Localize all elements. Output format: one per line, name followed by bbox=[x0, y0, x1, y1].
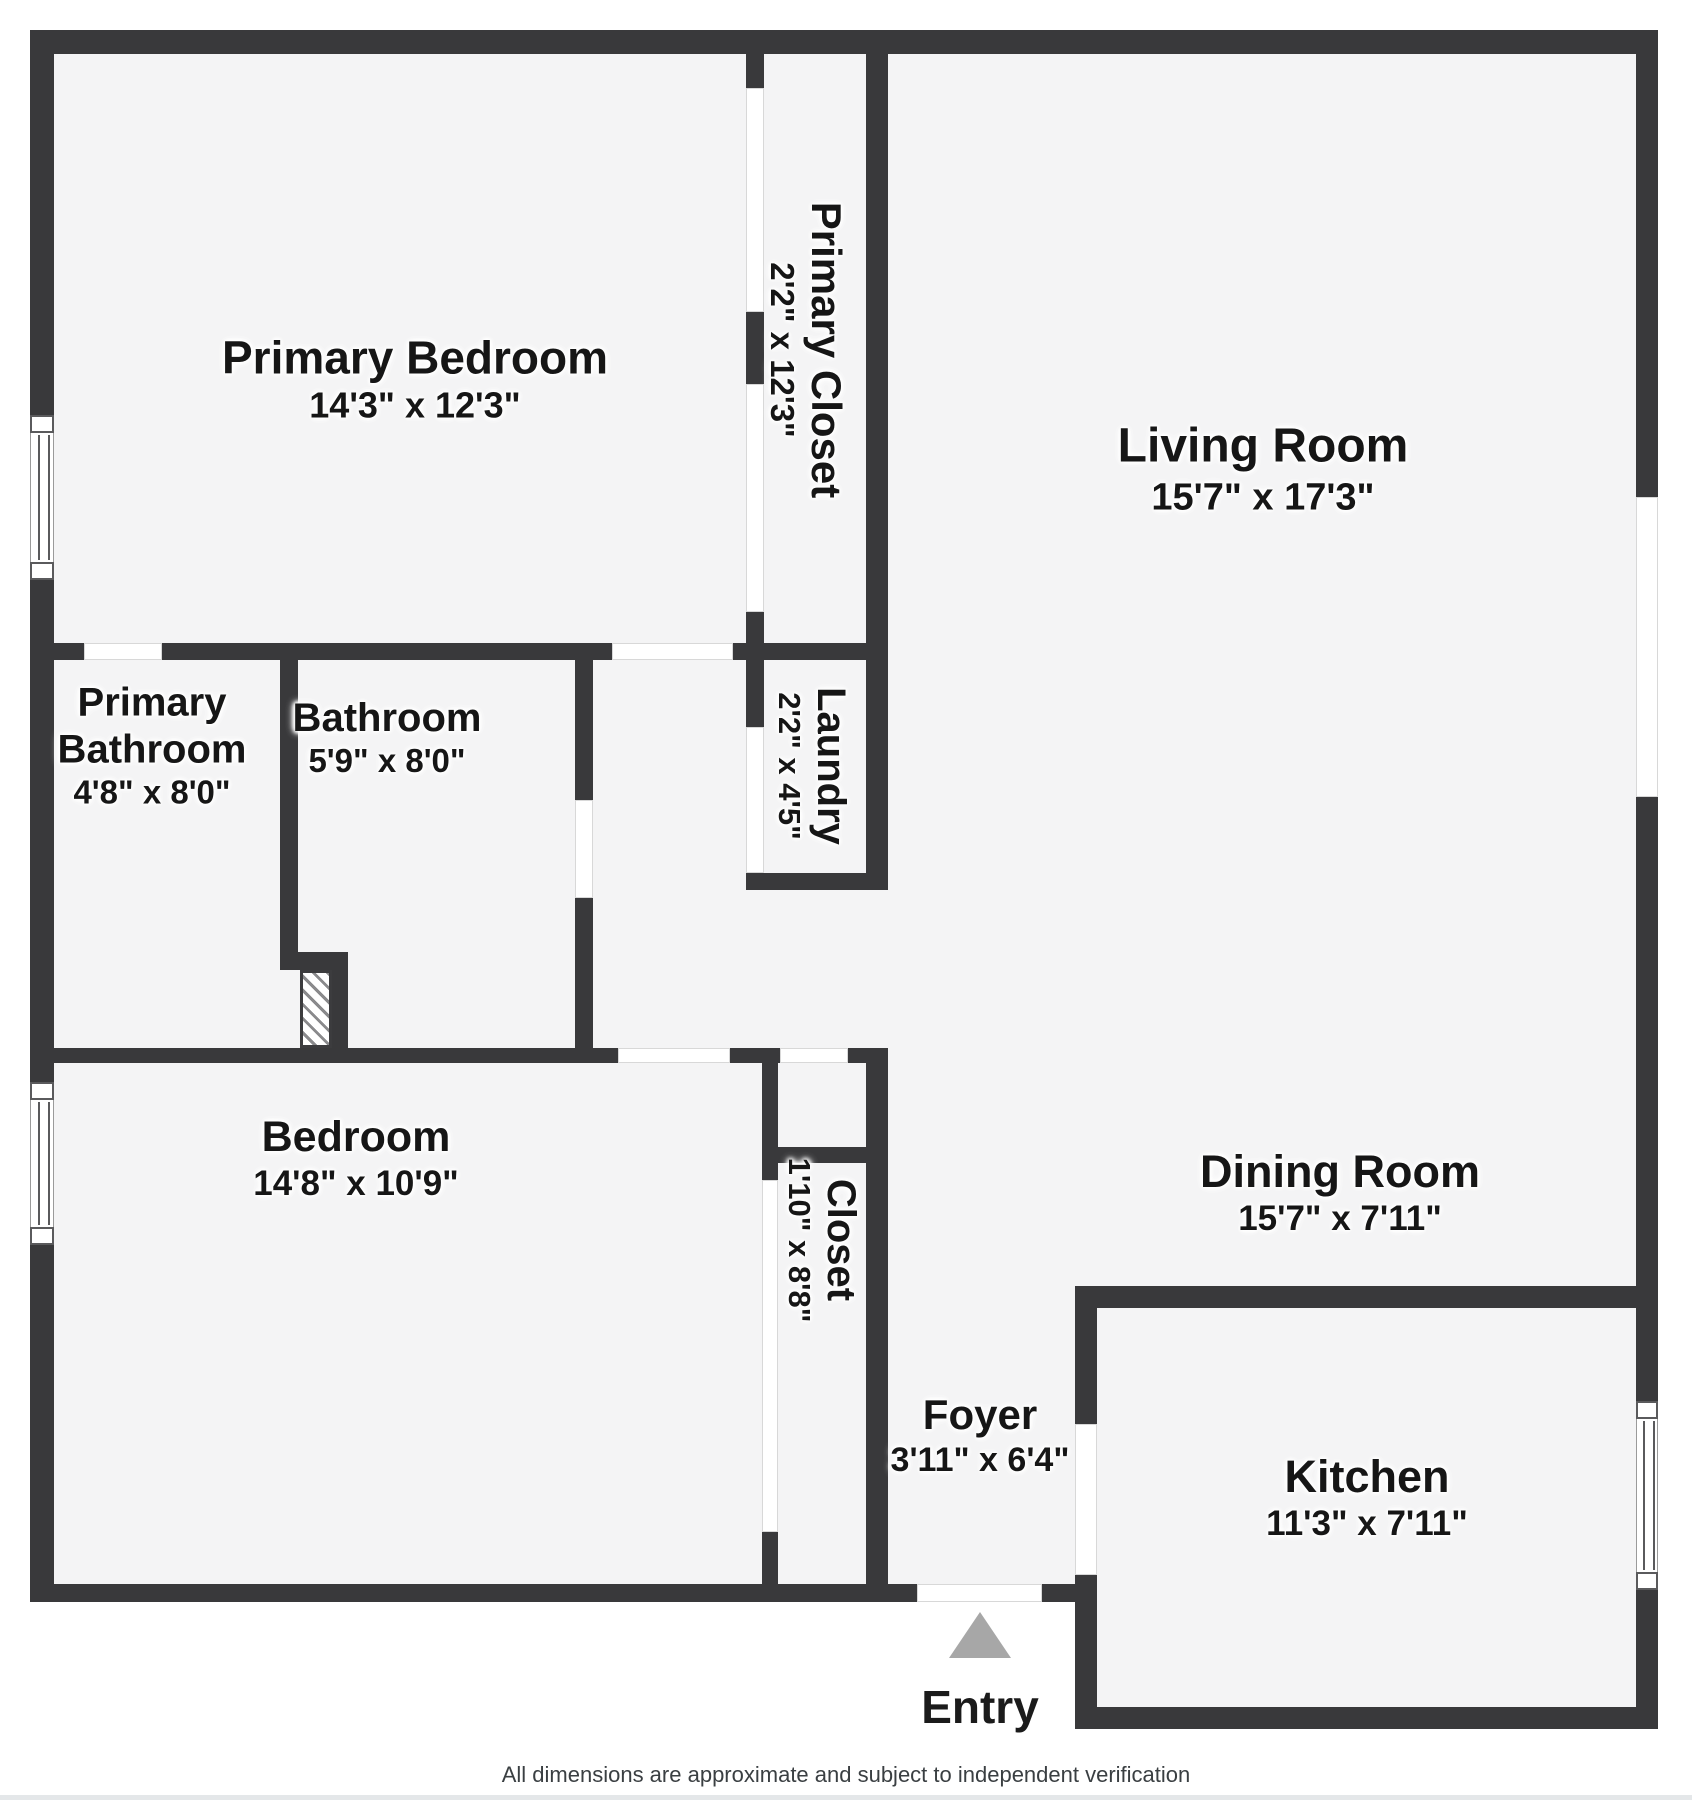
room-name: Bedroom bbox=[253, 1112, 459, 1163]
label-primary-bedroom: Primary Bedroom 14'3" x 12'3" bbox=[222, 331, 608, 428]
door-opening-laundry bbox=[746, 727, 764, 873]
room-dims: 14'3" x 12'3" bbox=[222, 385, 608, 427]
door-opening-nook bbox=[780, 1048, 848, 1063]
room-dims: 5'9" x 8'0" bbox=[293, 742, 482, 781]
room-dims: 4'8" x 8'0" bbox=[58, 774, 247, 813]
label-laundry: Laundry 2'2" x 4'5" bbox=[770, 687, 854, 845]
wall-closet-right bbox=[866, 1048, 888, 1602]
window-sill-icon bbox=[1636, 1572, 1658, 1590]
entry-label: Entry bbox=[921, 1680, 1039, 1734]
room-dims: 2'2" x 4'5" bbox=[770, 687, 807, 845]
disclaimer-text: All dimensions are approximate and subje… bbox=[0, 1762, 1692, 1788]
window-sill-icon bbox=[30, 1082, 54, 1100]
wall-primary-closet-left bbox=[746, 312, 764, 384]
door-opening-bedroom bbox=[618, 1048, 730, 1063]
room-name: Primary bbox=[58, 679, 247, 726]
door-opening-kitchen bbox=[1075, 1424, 1097, 1575]
wall-left bbox=[30, 580, 54, 1082]
window-sill-icon bbox=[30, 562, 54, 580]
wall-left bbox=[30, 54, 54, 415]
wall-bathroom-right bbox=[575, 660, 593, 800]
label-primary-closet: Primary Closet 2'2" x 12'3" bbox=[763, 202, 851, 498]
label-living-room: Living Room 15'7" x 17'3" bbox=[1118, 418, 1409, 519]
door-opening-entry bbox=[917, 1584, 1042, 1602]
wall-primary-closet-right bbox=[866, 54, 888, 890]
door-opening-primary-closet bbox=[746, 384, 764, 612]
label-bedroom: Bedroom 14'8" x 10'9" bbox=[253, 1112, 459, 1204]
room-dims: 11'3" x 7'11" bbox=[1266, 1503, 1468, 1544]
window-glass-icon bbox=[38, 435, 50, 560]
window-primary-bedroom bbox=[30, 415, 54, 580]
room-name: Bathroom bbox=[58, 727, 247, 774]
bottom-edge-bar bbox=[0, 1795, 1692, 1800]
door-opening-closet bbox=[762, 1180, 778, 1532]
wall-left bbox=[30, 1245, 54, 1602]
door-opening-primary-bedroom bbox=[612, 643, 733, 660]
room-name: Primary Bedroom bbox=[222, 331, 608, 385]
window-bedroom bbox=[30, 1082, 54, 1245]
wall-kitchen-left bbox=[1075, 1308, 1097, 1424]
wall-kitchen-bottom bbox=[1075, 1707, 1658, 1729]
label-foyer: Foyer 3'11" x 6'4" bbox=[891, 1390, 1070, 1480]
wall-hall-bottom bbox=[54, 1048, 618, 1063]
wall-primary-closet-left bbox=[746, 54, 764, 88]
wall-bathrooms-top bbox=[54, 643, 84, 660]
wall-hatch-cap bbox=[280, 952, 348, 970]
window-kitchen bbox=[1636, 1401, 1658, 1590]
door-opening-primary-bathroom bbox=[84, 643, 162, 660]
label-kitchen: Kitchen 11'3" x 7'11" bbox=[1266, 1450, 1468, 1544]
room-dims: 15'7" x 7'11" bbox=[1200, 1198, 1480, 1239]
door-opening-bathroom bbox=[575, 800, 593, 898]
wall-top bbox=[30, 30, 1658, 54]
room-dims: 2'2" x 12'3" bbox=[763, 202, 802, 498]
wall-kitchen-left bbox=[1075, 1575, 1097, 1729]
wall-kitchen-top bbox=[1075, 1286, 1658, 1308]
label-closet: Closet 1'10" x 8'8" bbox=[780, 1158, 864, 1323]
wall-bathroom-right bbox=[575, 898, 593, 1063]
window-glass-icon bbox=[38, 1102, 50, 1225]
floor-plan-page: Primary Bedroom 14'3" x 12'3" Primary Cl… bbox=[0, 0, 1692, 1800]
door-opening-primary-closet bbox=[746, 88, 764, 312]
room-dims: 1'10" x 8'8" bbox=[780, 1158, 817, 1323]
room-name: Primary Closet bbox=[802, 202, 852, 498]
room-dims: 15'7" x 17'3" bbox=[1118, 475, 1409, 520]
room-name: Dining Room bbox=[1200, 1145, 1480, 1198]
room-name: Laundry bbox=[807, 687, 854, 845]
entry-arrow-icon bbox=[949, 1612, 1011, 1658]
label-dining-room: Dining Room 15'7" x 7'11" bbox=[1200, 1145, 1480, 1239]
wall-bathrooms-top bbox=[162, 643, 612, 660]
label-primary-bathroom: Primary Bathroom 4'8" x 8'0" bbox=[58, 679, 247, 812]
wall-right bbox=[1636, 54, 1658, 497]
opening-living-room-balcony bbox=[1636, 497, 1658, 797]
room-name: Living Room bbox=[1118, 418, 1409, 475]
room-name: Closet bbox=[817, 1158, 864, 1323]
window-sill-icon bbox=[30, 415, 54, 433]
window-sill-icon bbox=[30, 1227, 54, 1245]
room-name: Bathroom bbox=[293, 695, 482, 742]
wall-bottom bbox=[30, 1584, 917, 1602]
room-dims: 14'8" x 10'9" bbox=[253, 1163, 459, 1204]
wall-laundry-top bbox=[733, 643, 888, 660]
room-dims: 3'11" x 6'4" bbox=[891, 1440, 1070, 1480]
wall-laundry-left bbox=[746, 660, 764, 727]
wall-laundry-bottom bbox=[746, 873, 888, 890]
room-name: Foyer bbox=[891, 1390, 1070, 1440]
window-sill-icon bbox=[1636, 1401, 1658, 1419]
wall-closet-left-stub bbox=[762, 1532, 778, 1602]
label-bathroom: Bathroom 5'9" x 8'0" bbox=[293, 695, 482, 781]
window-glass-icon bbox=[1643, 1421, 1655, 1570]
pocket-door-hatch bbox=[300, 970, 332, 1048]
room-name: Kitchen bbox=[1266, 1450, 1468, 1503]
wall-right bbox=[1636, 797, 1658, 1401]
